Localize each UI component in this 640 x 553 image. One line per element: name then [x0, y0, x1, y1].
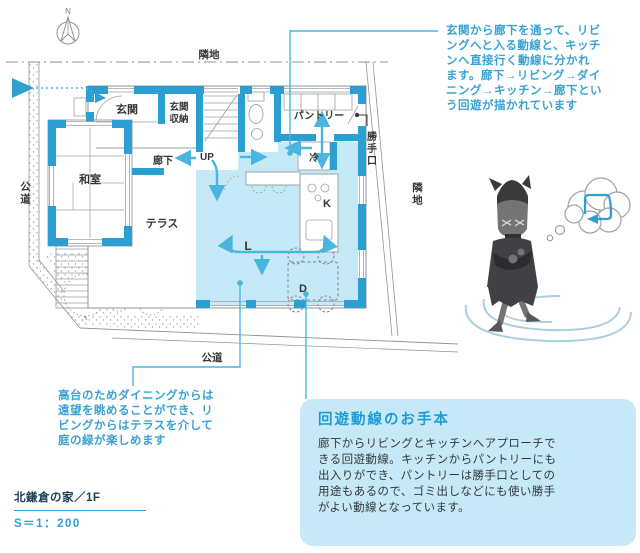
- callout-line: 出入りができ、パントリーは勝手口としての: [318, 468, 618, 484]
- callout-title: 回遊動線のお手本: [318, 408, 618, 429]
- label-genkan-shuno-2: 収納: [169, 113, 188, 125]
- label-terrace: テラス: [146, 217, 179, 230]
- label-dining: D: [299, 283, 307, 295]
- annotation-line: ビングからはテラスを介して: [58, 419, 214, 434]
- annotation-line: ングへと入る動線と、キッチ: [446, 39, 602, 54]
- project-title: 北鎌倉の家／1F: [14, 489, 154, 505]
- label-road-left: 公道: [19, 181, 31, 206]
- cat-ear-icon: [522, 175, 531, 189]
- annotation-dining-view: 高台のためダイニングからは 遠望を眺めることができ、リ ビングからはテラスを介し…: [58, 389, 214, 449]
- thought-bubble: [547, 178, 630, 241]
- north-label: N: [65, 7, 71, 16]
- plan-caption: 北鎌倉の家／1F S＝1：200: [14, 489, 154, 531]
- label-neighbor-right: 隣地: [411, 181, 423, 207]
- callout-line: 廊下からリビングとキッチンへアプローチで: [318, 436, 618, 452]
- callout-line: 用途もあるので、ゴミ出しなどにも使い勝手: [318, 484, 618, 500]
- annotation-entrance-flow: 玄関から廊下を通って、リビ ングへと入る動線と、キッチ ンへ直接行く動線に分かれ…: [446, 24, 602, 114]
- annotation-line: ます。廊下→リビング→ダイ: [446, 69, 602, 84]
- page: N 玄関 玄関 収納 UP パントリー 勝手口 冷 廊下 和室 テラス K L …: [0, 0, 640, 553]
- walk-swirl: [466, 296, 631, 341]
- label-katteguchi: 勝手口: [365, 130, 377, 167]
- label-rouka: 廊下: [153, 154, 173, 167]
- walking-cat-mascot: [487, 175, 541, 332]
- callout-line: きる回遊動線。キッチンからパントリーにも: [318, 452, 618, 468]
- annotation-line: ニング→キッチン→廊下とい: [446, 84, 602, 99]
- label-living: L: [244, 239, 251, 253]
- annotation-line: ンへ直接行く動線に分かれ: [446, 54, 602, 69]
- label-fridge: 冷: [309, 152, 319, 164]
- cat-ear-icon: [489, 178, 502, 191]
- label-kitchen: K: [323, 198, 331, 210]
- annotation-line: 庭の緑が楽しめます: [58, 434, 214, 449]
- north-compass: N: [57, 7, 79, 44]
- label-road-bottom: 公道: [202, 351, 223, 364]
- annotation-line: 玄関から廊下を通って、リビ: [446, 24, 602, 39]
- caption-divider: [14, 510, 146, 511]
- callout-line: がよい動線となっています。: [318, 500, 618, 516]
- label-genkan: 玄関: [116, 102, 138, 116]
- label-up: UP: [200, 152, 214, 163]
- scale-label: S＝1：200: [14, 515, 154, 531]
- label-washitsu: 和室: [79, 172, 101, 186]
- tip-callout-box: 回遊動線のお手本 廊下からリビングとキッチンへアプローチで きる回遊動線。キッチ…: [300, 399, 636, 546]
- label-genkan-shuno-1: 玄関: [169, 101, 188, 113]
- label-pantry: パントリー: [294, 110, 345, 122]
- annotation-line: 高台のためダイニングからは: [58, 389, 214, 404]
- label-neighbor-top: 隣地: [199, 48, 220, 61]
- callout-body: 廊下からリビングとキッチンへアプローチで きる回遊動線。キッチンからパントリーに…: [318, 436, 618, 516]
- annotation-line: 遠望を眺めることができ、リ: [58, 404, 214, 419]
- annotation-line: う回遊が描かれています: [446, 99, 602, 114]
